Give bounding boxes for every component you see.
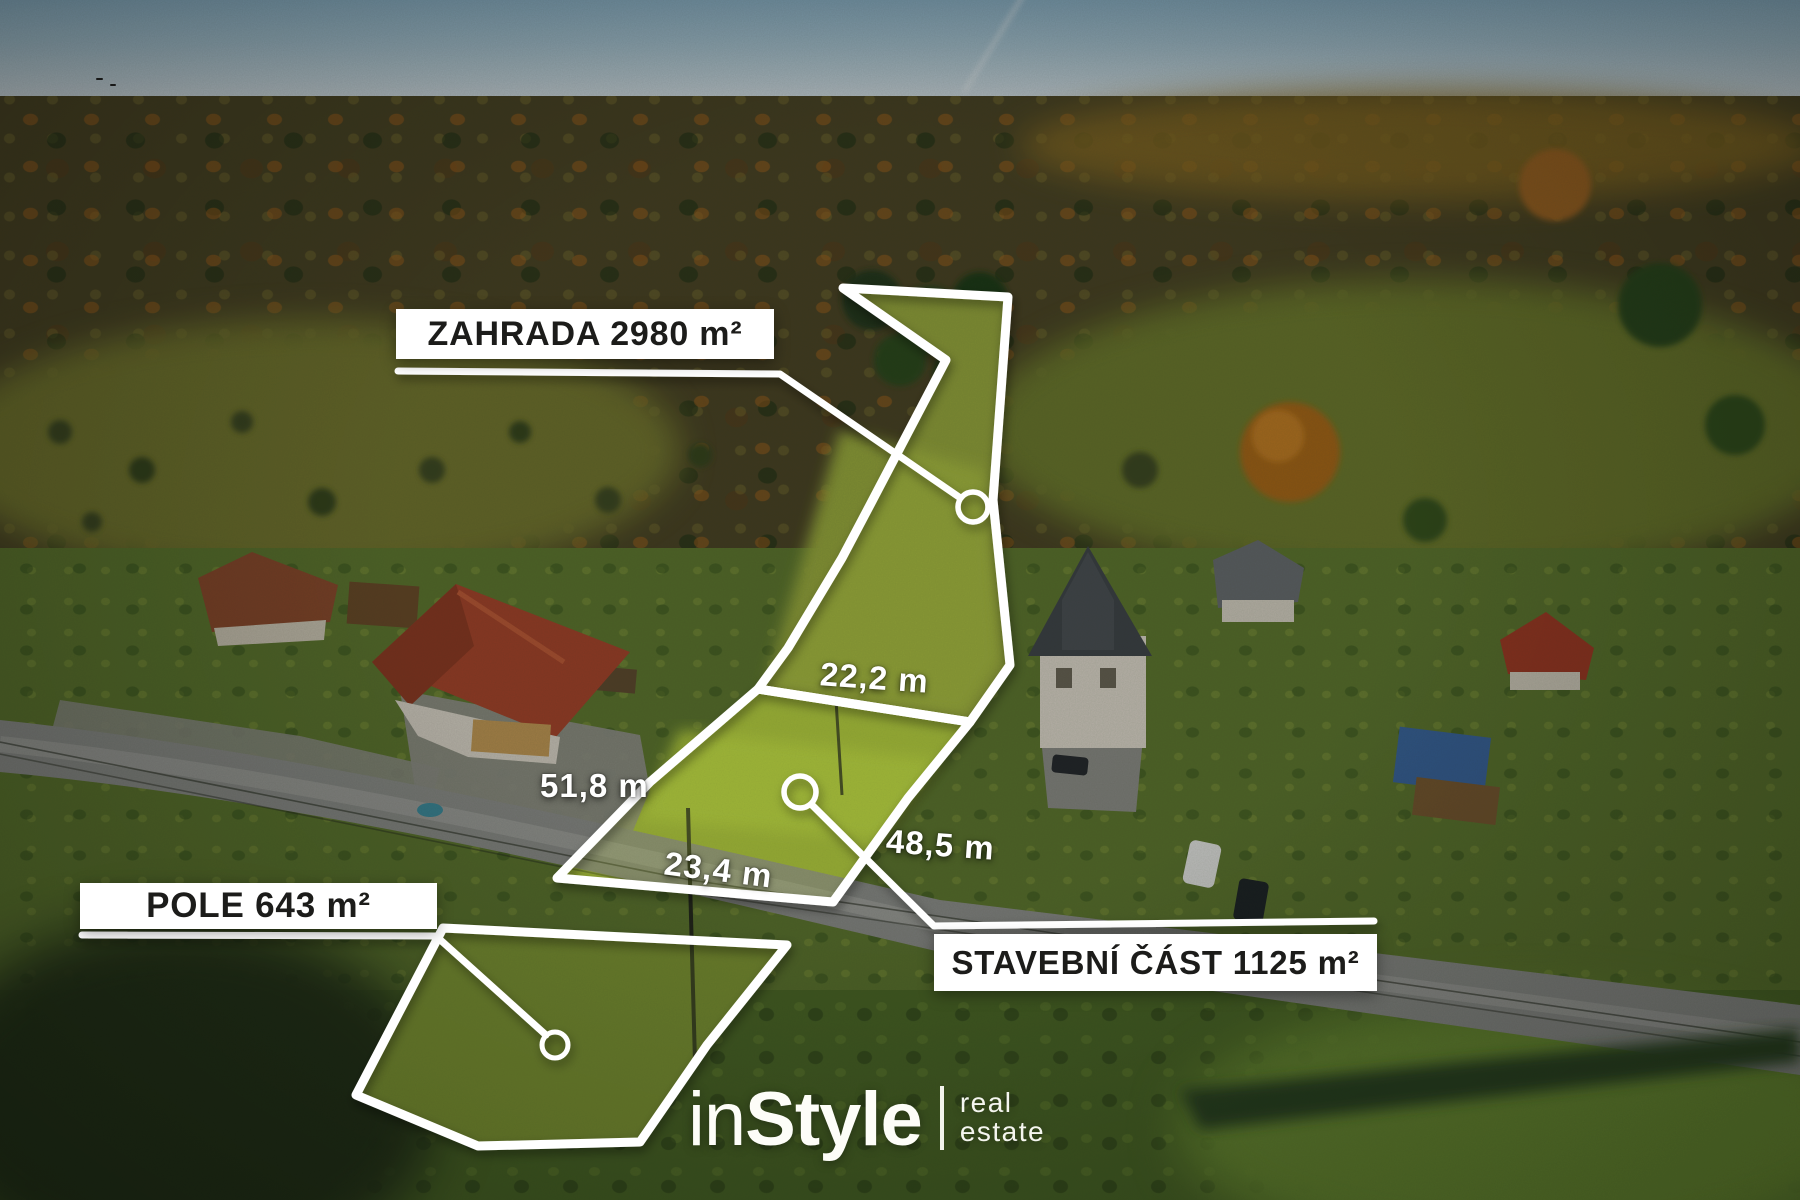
label-zahrada: ZAHRADA 2980 m² [396, 309, 774, 359]
dimension-left-side: 51,8 m [540, 767, 649, 805]
plot-annotations [0, 0, 1800, 1200]
agency-logo: inStyle real estate [688, 1082, 1045, 1158]
logo-brand-name: Style [745, 1077, 922, 1162]
logo-divider [940, 1086, 944, 1150]
label-pole: POLE 643 m² [80, 883, 437, 929]
logo-suffix-line2: estate [960, 1117, 1045, 1146]
label-stavebni: STAVEBNÍ ČÁST 1125 m² [934, 934, 1377, 991]
garden-label-leader [398, 371, 959, 497]
label-pole-text: POLE 643 m² [146, 886, 371, 926]
logo-brand: inStyle [688, 1082, 922, 1158]
real-estate-aerial-photo: ZAHRADA 2980 m² POLE 643 m² STAVEBNÍ ČÁS… [0, 0, 1800, 1200]
dimension-border-width: 22,2 m [819, 655, 930, 700]
dimension-right-side: 48,5 m [885, 822, 996, 867]
logo-brand-prefix: in [688, 1077, 745, 1162]
logo-suffix-line1: real [960, 1088, 1045, 1117]
label-zahrada-text: ZAHRADA 2980 m² [428, 315, 743, 354]
label-stavebni-text: STAVEBNÍ ČÁST 1125 m² [951, 944, 1359, 982]
logo-suffix: real estate [960, 1088, 1045, 1146]
garden-plot-fill [758, 288, 1010, 722]
